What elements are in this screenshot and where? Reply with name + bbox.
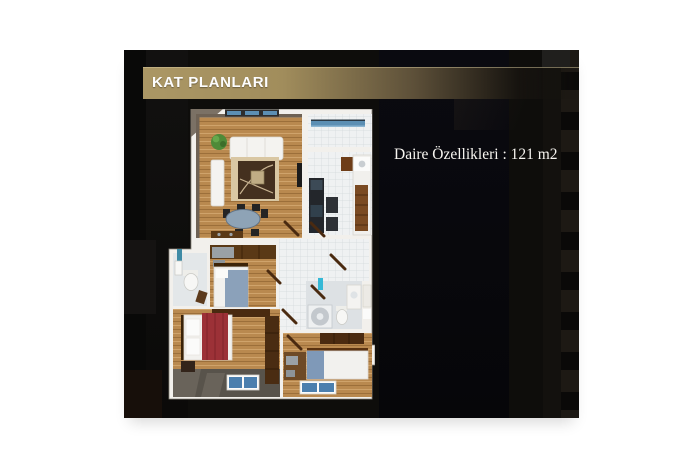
plant bbox=[211, 134, 227, 150]
blue-doormat bbox=[227, 375, 259, 390]
single-bed bbox=[307, 348, 368, 379]
coffee-table bbox=[251, 171, 264, 184]
wardrobe bbox=[265, 316, 279, 384]
console-table bbox=[211, 231, 243, 238]
single-bed bbox=[214, 263, 248, 307]
kitchen-counter bbox=[353, 155, 371, 235]
page: KAT PLANLARI Daire Özellikleri : 121 m2 bbox=[0, 0, 700, 466]
section-title: KAT PLANLARI bbox=[152, 74, 269, 91]
floor-plan-image bbox=[167, 109, 375, 401]
wc-window bbox=[177, 249, 182, 262]
toilet bbox=[183, 270, 198, 291]
living-room bbox=[196, 110, 302, 239]
sink bbox=[175, 261, 182, 275]
bathroom bbox=[306, 278, 371, 329]
wardrobe bbox=[320, 333, 364, 344]
terrace bbox=[173, 369, 280, 397]
shower bbox=[308, 305, 332, 328]
content-panel: KAT PLANLARI Daire Özellikleri : 121 m2 bbox=[124, 50, 579, 418]
rug bbox=[231, 157, 279, 201]
apartment-info-text: Daire Özellikleri : 121 m2 bbox=[394, 146, 558, 164]
background-building-patch-top bbox=[542, 50, 570, 67]
bedroom-master bbox=[173, 309, 280, 397]
living-room-windows bbox=[225, 110, 279, 117]
vanity bbox=[347, 285, 361, 309]
background-building-left-band bbox=[124, 50, 146, 418]
desk bbox=[284, 352, 306, 380]
bedroom-small bbox=[210, 245, 276, 307]
kitchen bbox=[308, 114, 372, 235]
double-bed bbox=[181, 313, 232, 360]
shower-glass bbox=[318, 278, 323, 290]
wc bbox=[173, 249, 208, 306]
background-building-windows bbox=[561, 50, 579, 418]
toilet bbox=[336, 306, 348, 325]
sofa-large bbox=[230, 137, 283, 160]
dresser bbox=[181, 361, 195, 372]
desk bbox=[212, 247, 234, 258]
background-building-patch bbox=[124, 240, 156, 314]
sofa-small bbox=[211, 160, 224, 206]
tv-unit bbox=[297, 163, 302, 187]
background-building-patch-brown bbox=[124, 370, 162, 418]
blue-doormat bbox=[300, 381, 336, 394]
section-header-bar: KAT PLANLARI bbox=[143, 67, 579, 99]
